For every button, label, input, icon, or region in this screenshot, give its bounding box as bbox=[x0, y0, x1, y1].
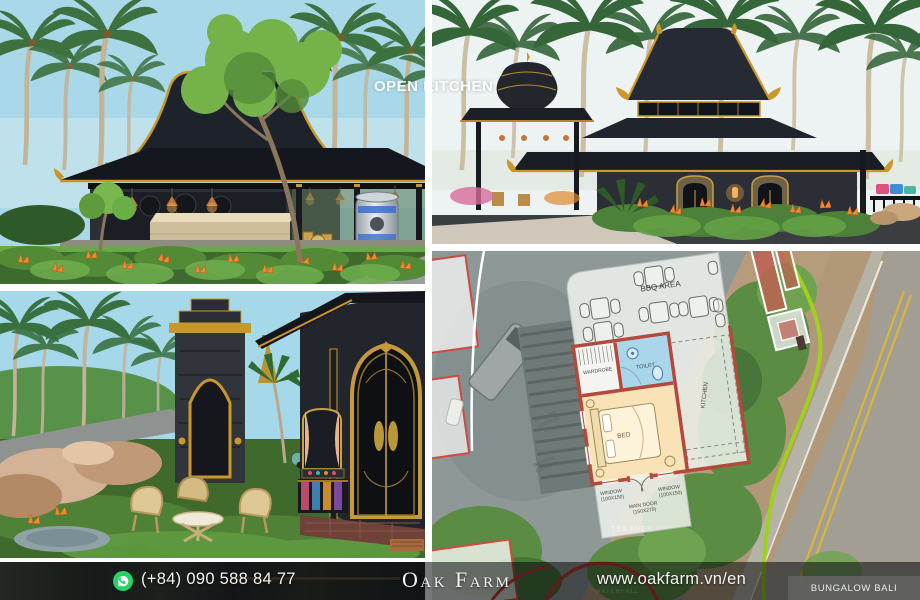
site-plan-aerial: BBQ AREA bbox=[432, 251, 920, 600]
render-bungalow-front bbox=[432, 0, 920, 244]
entrance-scene bbox=[0, 291, 425, 558]
column-divider bbox=[425, 0, 432, 600]
wall-lamp bbox=[726, 184, 744, 202]
label-tea-area: TEA AREA bbox=[611, 526, 653, 533]
site-plan: BBQ AREA bbox=[432, 251, 920, 600]
open-kitchen-scene bbox=[0, 0, 425, 284]
whatsapp-glyph bbox=[117, 575, 130, 588]
whatsapp-icon bbox=[113, 571, 133, 591]
brochure-collage: BBQ AREA bbox=[0, 0, 920, 600]
render-open-kitchen bbox=[0, 0, 425, 284]
balustrade bbox=[298, 479, 348, 513]
website-url: www.oakfarm.vn/en bbox=[597, 570, 746, 589]
bungalow-front-scene bbox=[432, 0, 920, 244]
room-toilet bbox=[617, 335, 673, 389]
phone-number: (+84) 090 588 84 77 bbox=[141, 570, 296, 589]
footer-bar: (+84) 090 588 84 77 Oak Farm www.oakfarm… bbox=[0, 562, 920, 600]
wicker-chair bbox=[178, 477, 208, 501]
open-kitchen-watermark: OPEN KITCHEN bbox=[374, 78, 493, 95]
bungalow-bali-badge: BUNGALOW BALI bbox=[788, 576, 920, 600]
grand-arch-door bbox=[352, 341, 420, 517]
render-entrance-closeup bbox=[0, 291, 425, 558]
brand-name: Oak Farm bbox=[402, 567, 511, 593]
